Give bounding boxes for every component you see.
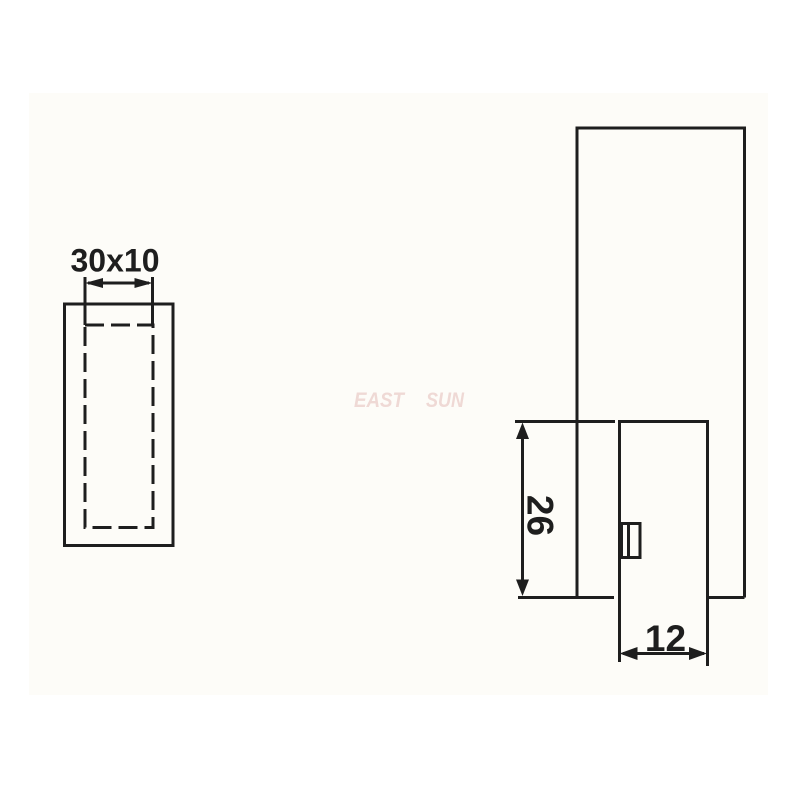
svg-text:12: 12 <box>645 618 686 659</box>
svg-text:30x10: 30x10 <box>71 243 160 279</box>
svg-text:26: 26 <box>520 495 561 536</box>
svg-text:SUN: SUN <box>426 388 464 412</box>
svg-text:EAST: EAST <box>354 388 406 412</box>
